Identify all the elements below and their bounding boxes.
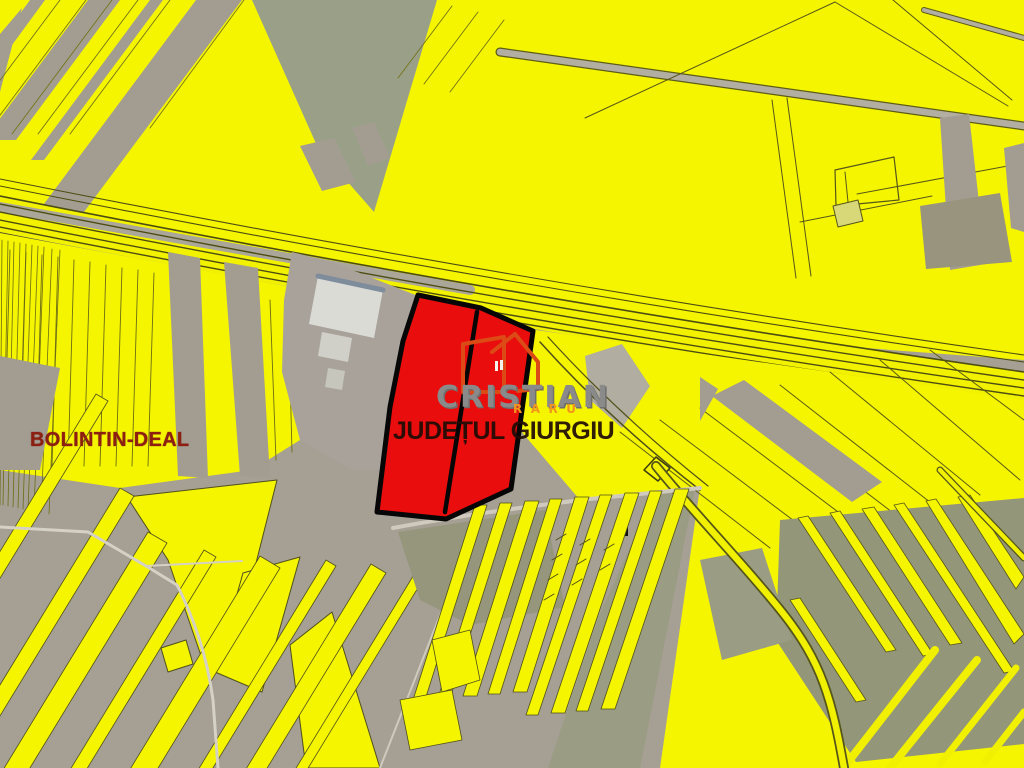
bare-patch-ne: [920, 193, 1012, 269]
small-parcel: [400, 690, 462, 750]
warehouse-annex: [325, 368, 345, 390]
map-screenshot: CRISTIAN RARU JUDEȚUL GIURGIU BOLINTIN-D…: [0, 0, 1024, 768]
map-canvas: [0, 0, 1024, 768]
watermark-house-icon: [495, 361, 498, 371]
watermark-house-icon: [500, 360, 503, 370]
